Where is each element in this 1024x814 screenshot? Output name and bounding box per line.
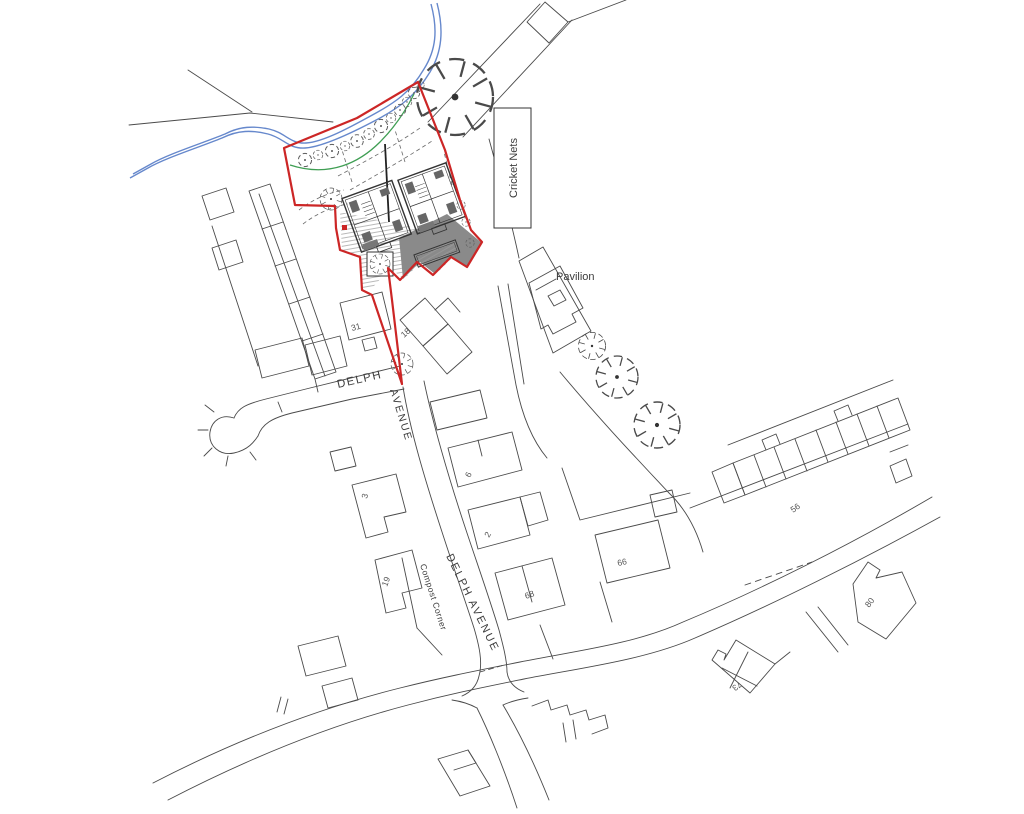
label-avenue: AVENUE: [387, 387, 414, 443]
house-number-68: 68: [523, 588, 536, 601]
house-number-2: 2: [482, 530, 493, 539]
label-pavilion: Pavilion: [556, 271, 595, 283]
house-number-19: 19: [379, 575, 392, 588]
label-delph-avenue: DELPH AVENUE: [443, 552, 501, 654]
label-delph: DELPH: [336, 369, 383, 391]
tree-icon: [596, 356, 638, 398]
house-number-31: 31: [350, 321, 362, 333]
label-cricket-nets: Cricket Nets: [508, 138, 520, 198]
map-labels: Pavilion DELPH AVENUE DELPH AVENUE Compo…: [336, 271, 595, 654]
tree-icon: [634, 402, 680, 448]
tree-icon: [578, 332, 605, 359]
house-number-3: 3: [359, 492, 370, 499]
site-plan-drawing: Cricket Nets Pavilion DELPH AVENUE DELPH…: [0, 0, 1024, 814]
cricket-nets-box: Cricket Nets: [494, 108, 531, 228]
site-interior: [299, 128, 482, 290]
house-number-73: 73: [730, 679, 744, 693]
house-numbers: 31 18 3 6 2 19 68 66 56 80 73: [350, 321, 877, 694]
house-number-56: 56: [788, 501, 802, 515]
house-number-66: 66: [616, 556, 628, 568]
house-number-80: 80: [863, 595, 877, 609]
house-number-6: 6: [463, 470, 474, 479]
site-plan-page: Cricket Nets Pavilion DELPH AVENUE DELPH…: [0, 0, 1024, 814]
house-number-18: 18: [399, 326, 413, 340]
tree-icon: [417, 59, 493, 135]
label-compost-corner: Compost Corner: [418, 563, 449, 632]
base-linework: [129, 0, 940, 808]
